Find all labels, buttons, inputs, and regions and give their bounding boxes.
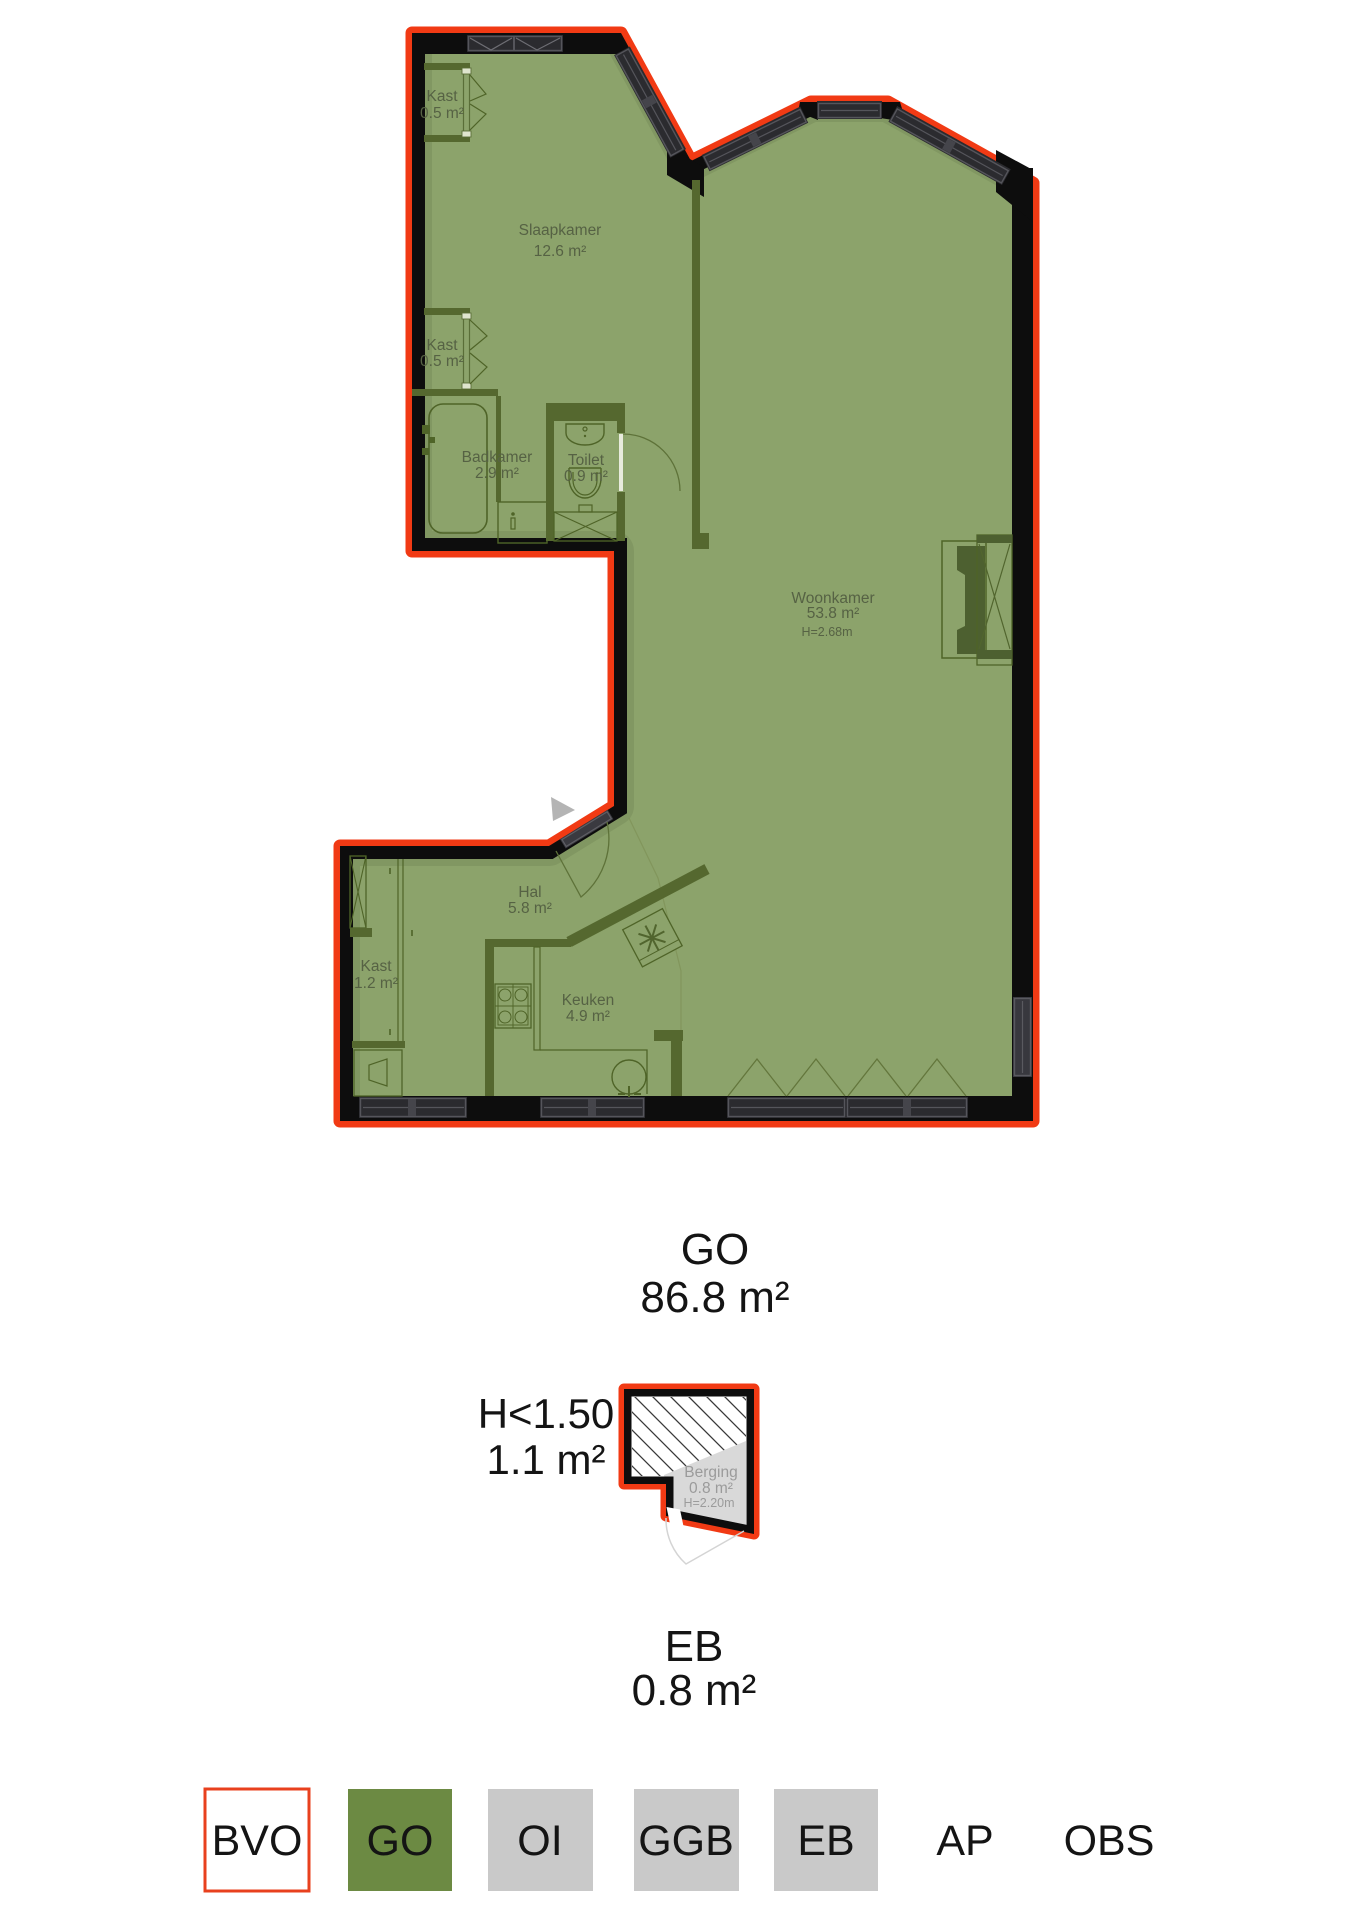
svg-text:0.8 m²: 0.8 m² bbox=[632, 1666, 757, 1715]
svg-text:12.6 m²: 12.6 m² bbox=[534, 243, 587, 260]
svg-text:2.9 m²: 2.9 m² bbox=[475, 465, 519, 482]
svg-text:0.8 m²: 0.8 m² bbox=[689, 1480, 733, 1497]
svg-text:AP: AP bbox=[936, 1817, 993, 1865]
svg-text:Toilet: Toilet bbox=[568, 452, 605, 469]
svg-text:1.2 m²: 1.2 m² bbox=[354, 975, 398, 992]
svg-text:GO: GO bbox=[367, 1817, 434, 1865]
svg-text:0.5 m²: 0.5 m² bbox=[420, 105, 464, 122]
svg-text:H=2.68m: H=2.68m bbox=[801, 625, 852, 639]
svg-text:Keuken: Keuken bbox=[562, 992, 615, 1009]
svg-text:H<1.50: H<1.50 bbox=[478, 1390, 615, 1437]
svg-text:5.8 m²: 5.8 m² bbox=[508, 900, 552, 917]
svg-text:1.1 m²: 1.1 m² bbox=[486, 1436, 605, 1483]
svg-text:OI: OI bbox=[517, 1817, 562, 1865]
svg-text:OBS: OBS bbox=[1064, 1817, 1155, 1865]
svg-text:0.9 m²: 0.9 m² bbox=[564, 468, 608, 485]
svg-text:Slaapkamer: Slaapkamer bbox=[519, 222, 602, 239]
svg-text:0.5 m²: 0.5 m² bbox=[420, 353, 464, 370]
svg-text:Berging: Berging bbox=[684, 1464, 737, 1481]
svg-text:Hal: Hal bbox=[518, 884, 541, 901]
svg-text:Badkamer: Badkamer bbox=[462, 449, 533, 466]
svg-text:4.9 m²: 4.9 m² bbox=[566, 1008, 610, 1025]
svg-text:Kast: Kast bbox=[360, 958, 392, 975]
svg-text:53.8 m²: 53.8 m² bbox=[807, 605, 860, 622]
svg-text:GGB: GGB bbox=[638, 1817, 734, 1865]
svg-text:GO: GO bbox=[681, 1225, 749, 1274]
svg-text:EB: EB bbox=[797, 1817, 854, 1865]
svg-text:H=2.20m: H=2.20m bbox=[683, 1496, 734, 1510]
svg-text:Kast: Kast bbox=[426, 337, 458, 354]
svg-text:EB: EB bbox=[665, 1622, 724, 1671]
svg-text:86.8 m²: 86.8 m² bbox=[640, 1273, 789, 1322]
svg-text:BVO: BVO bbox=[212, 1817, 303, 1865]
svg-text:Kast: Kast bbox=[426, 88, 458, 105]
